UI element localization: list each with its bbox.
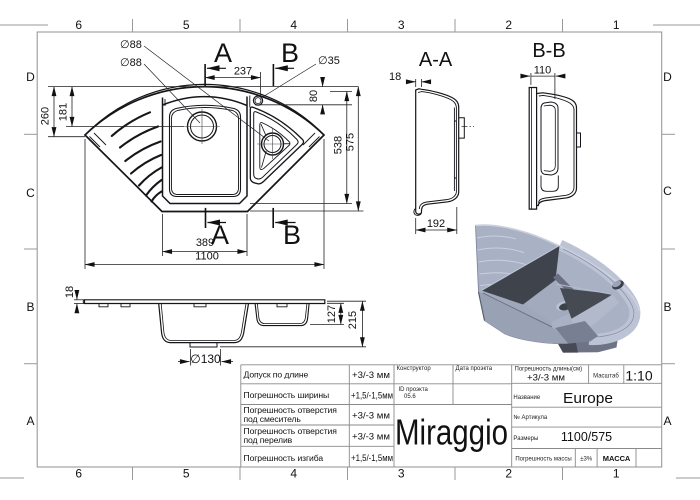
svg-text:Europe: Europe [563, 390, 613, 407]
svg-text:под перелив: под перелив [244, 435, 293, 445]
svg-text:Название: Название [513, 395, 540, 401]
svg-text:под смеситель: под смеситель [244, 414, 302, 424]
svg-text:B: B [663, 300, 671, 314]
svg-text:±3%: ±3% [580, 457, 593, 463]
svg-text:2: 2 [505, 467, 512, 481]
svg-text:A: A [26, 414, 34, 428]
svg-text:C: C [26, 186, 35, 200]
svg-text:D: D [26, 70, 35, 84]
svg-text:B: B [283, 220, 301, 250]
svg-text:A: A [663, 414, 671, 428]
svg-text:Размеры: Размеры [513, 436, 538, 442]
svg-text:ID проэкта: ID проэкта [399, 387, 429, 393]
svg-text:∅130: ∅130 [190, 352, 221, 366]
svg-text:110: 110 [534, 65, 552, 77]
svg-text:Погрешность ширины: Погрешность ширины [244, 390, 330, 400]
svg-text:A-A: A-A [419, 49, 453, 71]
svg-text:Допуск по длине: Допуск по длине [244, 370, 309, 380]
svg-text:5: 5 [183, 467, 190, 481]
svg-text:5: 5 [183, 18, 190, 32]
svg-text:+3/-3 мм: +3/-3 мм [352, 432, 390, 443]
svg-text:2: 2 [505, 18, 512, 32]
svg-text:18: 18 [389, 71, 401, 83]
svg-text:1100/575: 1100/575 [561, 430, 612, 444]
svg-text:3: 3 [398, 18, 405, 32]
svg-text:+1,5/-1,5мм: +1,5/-1,5мм [351, 391, 393, 402]
svg-text:192: 192 [427, 218, 445, 230]
svg-text:+3/-3 мм: +3/-3 мм [352, 411, 390, 422]
svg-text:Погрешность массы: Погрешность массы [515, 457, 571, 463]
svg-text:A: A [211, 220, 229, 250]
svg-text:A: A [214, 38, 232, 68]
svg-text:1100: 1100 [195, 251, 219, 263]
svg-text:МАССА: МАССА [603, 454, 631, 463]
svg-text:Масштаб: Масштаб [593, 374, 619, 380]
svg-text:1: 1 [613, 467, 620, 481]
svg-text:1: 1 [613, 18, 620, 32]
svg-text:+3/-3 мм: +3/-3 мм [352, 370, 390, 381]
svg-text:B-B: B-B [532, 40, 565, 62]
svg-text:№ Артикула: № Артикула [513, 414, 547, 421]
svg-text:B: B [26, 300, 34, 314]
svg-text:575: 575 [345, 133, 357, 151]
svg-text:3: 3 [398, 467, 405, 481]
svg-text:538: 538 [333, 136, 345, 154]
svg-text:+3/-3 мм: +3/-3 мм [527, 373, 565, 384]
svg-text:Дата проэкта: Дата проэкта [456, 366, 493, 372]
svg-text:80: 80 [308, 90, 320, 102]
svg-text:D: D [663, 70, 672, 84]
svg-text:C: C [663, 184, 672, 198]
svg-text:05.6: 05.6 [404, 394, 416, 400]
svg-text:1:10: 1:10 [625, 368, 652, 384]
svg-text:∅88: ∅88 [120, 39, 142, 51]
svg-text:Miraggio: Miraggio [395, 412, 508, 453]
svg-text:B: B [281, 38, 299, 68]
svg-text:215: 215 [347, 311, 359, 329]
svg-text:Конструктор: Конструктор [397, 366, 432, 372]
svg-text:6: 6 [75, 18, 82, 32]
svg-text:∅35: ∅35 [318, 55, 340, 67]
svg-text:4: 4 [290, 18, 297, 32]
svg-text:18: 18 [64, 286, 76, 298]
svg-text:260: 260 [40, 107, 52, 125]
svg-text:∅88: ∅88 [120, 57, 142, 69]
svg-text:Погрешность изгиба: Погрешность изгиба [244, 453, 324, 463]
svg-text:237: 237 [234, 66, 252, 78]
svg-text:6: 6 [75, 467, 82, 481]
svg-text:127: 127 [326, 305, 338, 323]
svg-text:181: 181 [58, 103, 70, 121]
svg-text:+1,5/-1,5мм: +1,5/-1,5мм [351, 453, 393, 464]
svg-text:4: 4 [290, 467, 297, 481]
